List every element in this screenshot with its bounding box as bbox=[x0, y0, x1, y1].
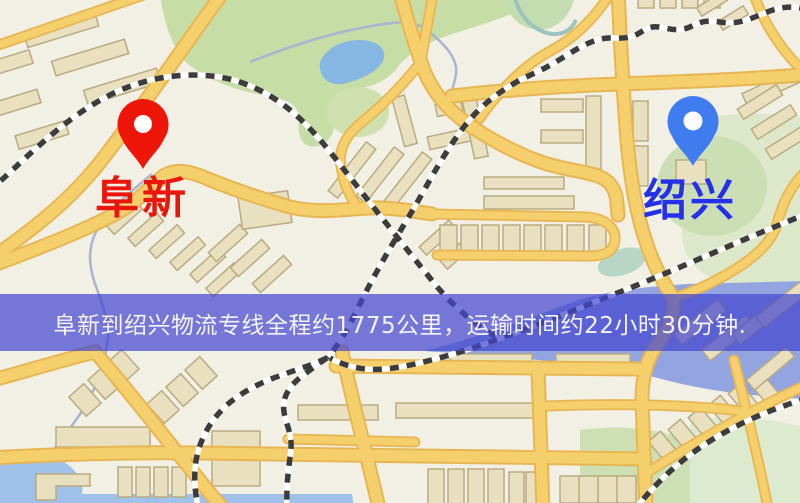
route-info-banner: 阜新到绍兴物流专线全程约1775公里，运输时间约22小时30分钟. bbox=[0, 294, 800, 351]
destination-pin-hole bbox=[684, 112, 703, 131]
destination-city-label: 绍兴 bbox=[643, 179, 737, 223]
origin-city-label: 阜新 bbox=[95, 177, 189, 221]
route-info-text: 阜新到绍兴物流专线全程约1775公里，运输时间约22小时30分钟. bbox=[54, 306, 747, 340]
map-screenshot: 阜新 绍兴 阜新到绍兴物流专线全程约1775公里，运输时间约22小时30分钟. bbox=[0, 0, 800, 503]
origin-pin-hole bbox=[134, 115, 152, 133]
map-canvas bbox=[0, 0, 800, 503]
